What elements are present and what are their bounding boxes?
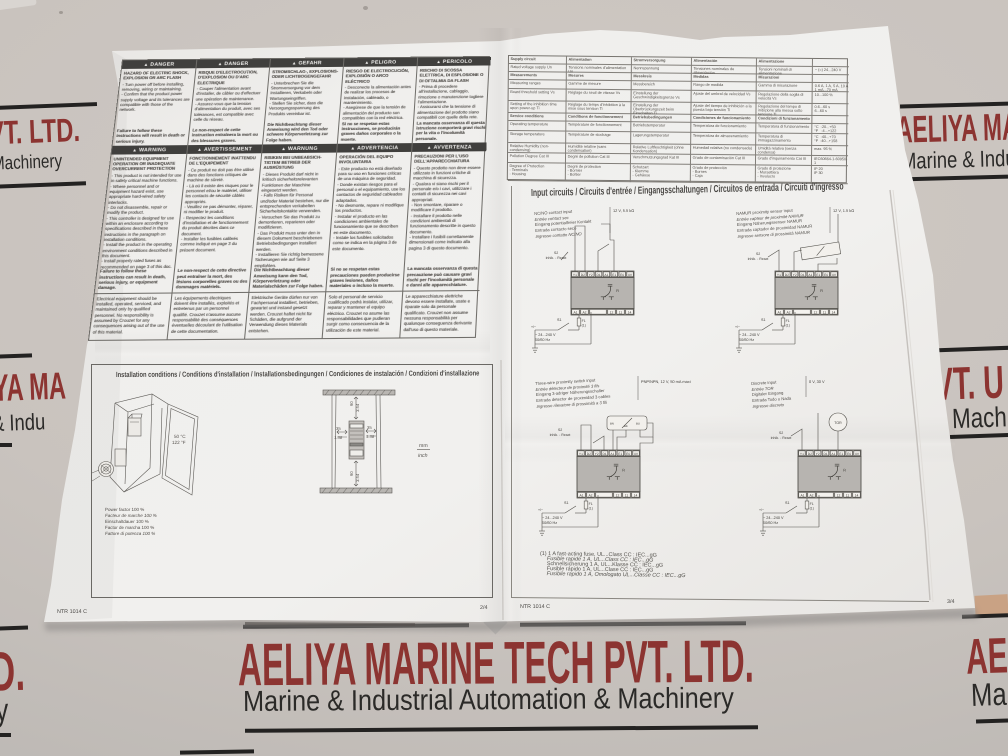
- svg-text:+/~: +/~: [531, 325, 536, 329]
- svg-text:A1: A1: [831, 452, 835, 456]
- svg-text:0 V, 30 V: 0 V, 30 V: [809, 379, 825, 384]
- svg-text:~ 24...240 V: ~ 24...240 V: [542, 516, 563, 520]
- svg-text:~ 24...240 V: ~ 24...240 V: [535, 333, 556, 337]
- svg-text:1.38: 1.38: [334, 435, 343, 440]
- svg-text:A1: A1: [800, 493, 804, 497]
- svg-text:S1: S1: [785, 501, 790, 505]
- svg-text:A2: A2: [786, 310, 790, 314]
- svg-text:D1: D1: [823, 452, 827, 456]
- svg-text:S1: S1: [557, 318, 562, 322]
- svg-text:D2: D2: [785, 273, 789, 277]
- svg-text:Y1: Y1: [573, 273, 577, 277]
- svg-text:A2: A2: [809, 493, 813, 497]
- svg-text:Inhib. - Reset: Inhib. - Reset: [771, 436, 792, 440]
- svg-text:A1: A1: [777, 310, 781, 314]
- svg-text:3.54: 3.54: [355, 403, 360, 412]
- svg-text:90: 90: [349, 471, 354, 476]
- svg-text:F1: F1: [810, 502, 814, 506]
- svg-text:Y2: Y2: [816, 452, 820, 456]
- svg-text:12 V, 5.5 kΩ: 12 V, 5.5 kΩ: [613, 208, 634, 213]
- svg-text:A1: A1: [610, 452, 614, 456]
- svg-text:Inhib. - Reset: Inhib. - Reset: [748, 257, 769, 261]
- svg-text:D2: D2: [808, 452, 812, 456]
- svg-text:E0: E0: [620, 273, 624, 277]
- svg-text:inch: inch: [418, 453, 428, 459]
- svg-text:Y1: Y1: [579, 452, 583, 456]
- svg-text:R: R: [616, 289, 619, 293]
- svg-text:A1: A1: [808, 273, 812, 277]
- svg-text:35: 35: [336, 426, 341, 431]
- svg-text:D2: D2: [581, 273, 585, 277]
- svg-text:(1): (1): [589, 507, 593, 511]
- svg-text:50 °C: 50 °C: [174, 434, 186, 439]
- svg-text:14: 14: [628, 310, 632, 314]
- svg-text:E1: E1: [618, 452, 622, 456]
- svg-text:R: R: [622, 469, 625, 473]
- svg-text:D1: D1: [800, 273, 804, 277]
- svg-text:Y2: Y2: [793, 273, 797, 277]
- svg-text:+/~: +/~: [759, 508, 764, 512]
- svg-text:14: 14: [634, 493, 638, 497]
- svg-text:TOR: TOR: [834, 421, 842, 425]
- svg-text:A1: A1: [604, 273, 608, 277]
- svg-text:Y1: Y1: [800, 452, 804, 456]
- svg-text:A1: A1: [579, 493, 583, 497]
- svg-text:E0: E0: [824, 273, 828, 277]
- svg-text:F1: F1: [786, 319, 790, 323]
- svg-text:BK: BK: [624, 424, 628, 428]
- svg-text:+/~: +/~: [735, 325, 740, 329]
- svg-text:Inhib. - Reset: Inhib. - Reset: [546, 256, 567, 260]
- svg-text:D1: D1: [602, 452, 606, 456]
- svg-text:(1): (1): [786, 324, 790, 328]
- svg-text:14: 14: [832, 310, 836, 314]
- svg-text:12 V, 1.5 kΩ: 12 V, 1.5 kΩ: [833, 208, 854, 213]
- svg-text:11: 11: [823, 310, 827, 314]
- svg-text:S2: S2: [756, 252, 760, 256]
- svg-text:F1: F1: [582, 319, 586, 323]
- svg-text:S2: S2: [779, 431, 783, 435]
- svg-text:(1): (1): [582, 324, 586, 328]
- svg-text:1.38: 1.38: [366, 434, 375, 439]
- svg-text:S2: S2: [558, 428, 562, 432]
- svg-text:E1: E1: [612, 273, 616, 277]
- svg-text:12: 12: [837, 493, 841, 497]
- svg-text:(1): (1): [810, 507, 814, 511]
- svg-text:90: 90: [349, 401, 354, 406]
- svg-text:Y1: Y1: [777, 273, 781, 277]
- svg-text:A2: A2: [588, 493, 592, 497]
- svg-text:S1: S1: [761, 318, 766, 322]
- svg-text:BN: BN: [610, 422, 614, 426]
- svg-text:122 °F: 122 °F: [172, 440, 186, 445]
- svg-text:+/~: +/~: [538, 508, 543, 512]
- svg-text:~ 24...240 V: ~ 24...240 V: [763, 516, 784, 520]
- svg-text:14: 14: [855, 493, 859, 497]
- svg-text:50/60 Hz: 50/60 Hz: [763, 521, 778, 525]
- svg-text:12: 12: [814, 310, 818, 314]
- svg-text:A2: A2: [582, 310, 586, 314]
- svg-text:35: 35: [367, 425, 372, 430]
- svg-text:R: R: [820, 289, 823, 293]
- svg-text:E0: E0: [847, 452, 851, 456]
- svg-text:Y2: Y2: [589, 273, 593, 277]
- svg-text:R: R: [843, 469, 846, 473]
- svg-text:50/60 Hz: 50/60 Hz: [542, 521, 557, 525]
- svg-text:mm: mm: [419, 443, 428, 449]
- svg-text:3.54: 3.54: [355, 473, 360, 482]
- svg-text:11: 11: [846, 493, 850, 497]
- svg-text:D1: D1: [596, 273, 600, 277]
- svg-text:12: 12: [616, 493, 620, 497]
- svg-text:PNP/NPN, 12 V, 50 mA maxi: PNP/NPN, 12 V, 50 mA maxi: [641, 379, 691, 384]
- svg-text:11: 11: [625, 493, 629, 497]
- svg-text:D2: D2: [587, 452, 591, 456]
- svg-text:F1: F1: [589, 502, 593, 506]
- svg-text:E1: E1: [839, 452, 843, 456]
- svg-text:50/60 Hz: 50/60 Hz: [535, 338, 550, 342]
- svg-text:S2: S2: [554, 251, 558, 255]
- svg-text:50/60 Hz: 50/60 Hz: [739, 338, 754, 342]
- svg-text:11: 11: [619, 310, 623, 314]
- svg-text:Inhib. - Reset: Inhib. - Reset: [550, 433, 571, 437]
- svg-text:A1: A1: [573, 310, 577, 314]
- svg-text:E0: E0: [626, 452, 630, 456]
- svg-text:S1: S1: [564, 501, 569, 505]
- svg-text:Y2: Y2: [595, 452, 599, 456]
- svg-text:~ 24...240 V: ~ 24...240 V: [739, 333, 760, 337]
- svg-text:E1: E1: [816, 273, 820, 277]
- svg-text:BU: BU: [636, 422, 640, 426]
- svg-text:12: 12: [610, 310, 614, 314]
